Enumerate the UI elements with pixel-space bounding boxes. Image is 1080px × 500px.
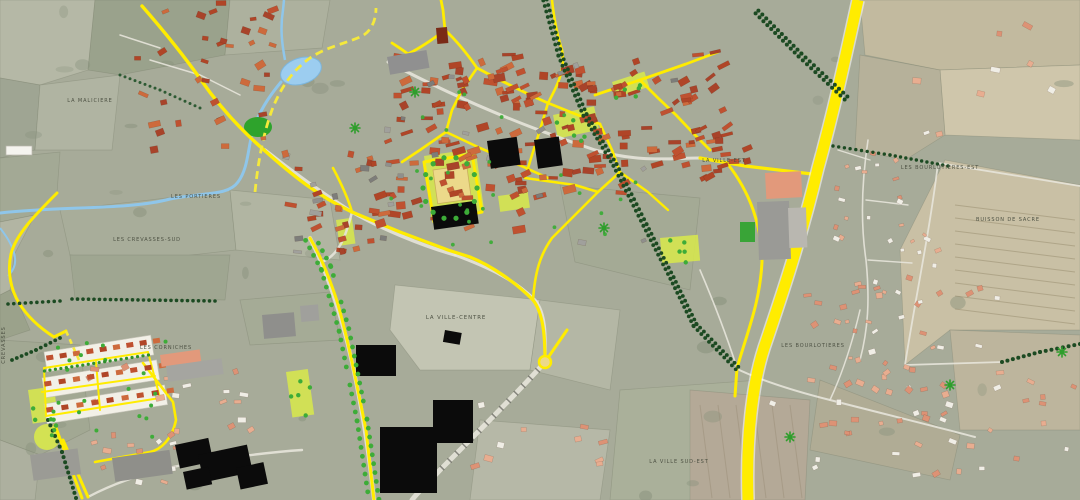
hedge-tree [197,299,201,303]
street-tree [349,392,354,397]
large-building [300,304,319,322]
building [520,83,530,90]
hedge-tree [671,282,675,286]
hedge-tree [809,66,813,70]
street-tree [359,390,364,395]
hedge-tree [92,362,95,365]
building [720,131,733,137]
street-tree [373,470,378,475]
hedge-tree [1011,357,1015,361]
hedge-tree [668,277,672,281]
building [899,223,904,227]
hedge-tree [621,184,625,188]
hedge-tree [131,298,135,302]
field-patch [60,190,236,262]
street-tree [429,177,433,181]
development-tree [77,410,81,414]
map-canvas[interactable]: LA MALICIERELES PORTIERESLES CREVASSES-S… [0,0,1080,500]
street-tree [331,273,336,278]
hedge-tree [139,81,142,84]
roundabout [539,356,551,368]
hedge-tree [631,204,635,208]
building [849,357,853,360]
building [834,319,842,325]
hedge-tree [74,496,78,500]
hedge-tree [659,251,663,255]
hedge-tree [915,158,918,161]
building [150,146,159,154]
hedge-tree [579,97,583,101]
development-tree [79,353,83,357]
hedge-tree [654,248,658,252]
building [111,432,116,438]
hedge-tree [789,47,793,51]
street-tree [340,347,345,352]
building [909,367,915,372]
bush [56,66,74,72]
bush [1054,80,1074,87]
hedge-tree [652,237,656,241]
bush [950,296,966,309]
square-tree [472,172,477,177]
building [138,91,149,98]
hedge-tree [65,366,68,369]
hedge-tree [184,100,187,103]
street-tree [371,461,376,466]
building [819,422,827,427]
hedge-tree [164,299,168,303]
hedge-tree [552,25,556,29]
hedge-tree [776,28,780,32]
hedge-tree [625,182,629,186]
building [717,60,730,70]
building [175,120,181,127]
hedge-tree [12,302,16,306]
bush [330,80,345,87]
building [172,393,180,399]
hedge-tree [651,243,655,247]
building [905,386,914,395]
zone-tree [668,238,672,242]
street-tree [332,311,337,316]
hedge-tree [559,59,563,63]
hedge-tree [634,209,638,213]
map-label-la-maliciere: LA MALICIERE [67,98,112,104]
building [810,321,818,329]
hedge-tree [186,299,190,303]
building [367,238,374,243]
building [155,128,165,137]
bush [43,250,53,257]
building [851,289,859,295]
hedge-tree [664,261,668,265]
hedge-tree [119,358,122,361]
street-tree [444,128,448,132]
field-patch [70,255,230,300]
building [941,411,948,417]
bush [125,124,138,128]
hedge-tree [545,0,549,1]
zone-tree [677,249,681,253]
hedge-tree [784,36,788,40]
hedge-tree [557,42,561,46]
building [893,177,900,181]
hedge-tree [690,313,694,317]
hedge-tree [550,32,554,36]
large-building [387,50,430,75]
hedge-tree [49,341,53,345]
building [833,224,838,230]
hedge-tree [47,300,51,304]
hedge-tree [208,299,212,303]
hedge-tree [685,310,689,314]
hedge-tree [662,256,666,260]
square-tree [423,199,428,204]
street-tree [467,220,471,224]
hedge-tree [1067,344,1071,348]
building [932,263,937,268]
hedge-tree [620,172,624,176]
building [134,56,140,60]
park-patch [740,222,755,242]
star-tree-icon [788,435,791,438]
public-building [183,467,212,490]
building [647,146,657,152]
building [388,202,394,207]
street-tree [321,276,326,281]
hedge-tree [577,104,581,108]
hedge-tree [644,229,648,233]
street-tree [353,410,358,415]
building [836,399,841,405]
building [996,370,1004,375]
street-tree [361,399,366,404]
building [431,152,438,158]
hedge-tree [70,297,74,301]
hedge-tree [622,177,626,181]
building [261,136,266,140]
building [868,348,876,355]
hedge-tree [35,301,39,305]
hedge-tree [583,107,587,111]
street-tree [303,238,308,243]
hedge-tree [44,343,48,347]
building [513,103,520,110]
field-patch [0,215,35,295]
hedge-tree [666,272,670,276]
building [156,438,163,445]
street-tree [338,338,343,343]
hedge-tree [81,363,84,366]
street-tree [367,435,372,440]
street-tree [559,173,563,177]
building [253,85,265,92]
building [398,186,405,192]
hedge-tree [543,4,547,8]
building [332,193,338,200]
map-label-la-ville-est: LA VILLE-EST [702,158,746,164]
hedge-tree [576,92,580,96]
map-label-buisson-de-sacre: BUISSON DE SACRE [976,217,1040,223]
hedge-tree [635,202,639,206]
building [651,160,664,168]
hedge-tree [41,300,45,304]
building [815,457,820,462]
field-patch [390,285,540,370]
building [720,152,731,157]
building [882,360,888,366]
building [160,99,167,105]
hedge-tree [617,167,621,171]
building [426,124,438,134]
hedge-tree [92,298,96,302]
hedge-tree [98,361,101,364]
hedge-tree [34,348,38,352]
building [515,181,526,185]
building [574,436,582,442]
hedge-tree [799,52,803,56]
building [681,161,690,168]
street-tree [307,245,312,250]
street-tree [562,113,566,117]
hedge-tree [72,491,76,495]
street-tree [361,463,366,468]
hedge-tree [551,20,555,24]
building [912,472,921,477]
building [845,164,850,168]
hedge-tree [681,294,685,298]
building [369,175,378,183]
hedge-tree [567,79,571,83]
building [587,100,596,106]
hedge-tree [130,356,133,359]
street-tree [487,160,491,164]
street-tree [311,253,316,258]
map-label-les-crevasses-sud: LES CREVASSES-SUD [113,237,181,243]
hedge-tree [632,197,636,201]
large-building [765,171,802,199]
building [239,392,248,397]
hedge-tree [675,291,679,295]
hedge-tree [796,48,800,52]
zone-tree [682,240,686,244]
street-tree [421,115,425,119]
hedge-tree [544,10,548,14]
development-tree [50,433,54,437]
building [410,160,419,165]
building [401,116,406,120]
hedge-tree [52,300,56,304]
hedge-tree [103,298,107,302]
hedge-tree [174,95,177,98]
building [384,127,390,133]
field-patch [940,65,1080,140]
hedge-tree [48,369,51,372]
street-tree [319,267,324,272]
development-tree [153,392,157,396]
hedge-tree [837,87,841,91]
building [618,130,631,136]
building [873,279,879,285]
street-tree [463,92,467,96]
map-label-la-ville-sud-est: LA VILLE SUD-EST [649,459,708,465]
hedge-tree [831,144,834,147]
building [583,167,595,174]
hedge-tree [153,298,157,302]
bush [977,383,986,396]
street-tree [360,454,365,459]
hedge-tree [925,160,928,163]
building [867,216,871,220]
bush [59,6,68,19]
hedge-tree [733,361,737,365]
zone-tree [298,379,302,383]
development-tree [82,399,86,403]
street-tree [348,336,353,341]
hedge-tree [149,85,152,88]
building [294,236,303,242]
hedge-tree [822,78,826,82]
hedge-tree [702,330,706,334]
hedge-tree [87,363,90,366]
hedge-tree [29,350,33,354]
hedge-tree [624,189,628,193]
hedge-tree [169,299,173,303]
hedge-tree [871,151,874,154]
hedge-tree [548,9,552,13]
building [516,68,526,76]
hedge-tree [772,24,776,28]
building [641,126,652,130]
hedge-tree [845,95,849,99]
building [437,108,444,114]
zone-tree [303,413,307,417]
building [668,140,681,144]
hedge-tree [98,298,102,302]
street-tree [489,240,493,244]
building [335,205,342,211]
development-tree [57,401,61,405]
hedge-tree [76,297,80,301]
hedge-tree [571,89,575,93]
building [913,410,920,417]
hedge-tree [147,353,150,356]
building [705,73,715,82]
hedge-tree [656,253,660,257]
map-label-crevasses-edge: CREVASSES [1,326,7,363]
building [355,225,362,231]
building [895,289,901,295]
building [713,169,722,174]
building [247,426,255,434]
hedge-tree [615,162,619,166]
hedge-tree [199,107,202,110]
hedge-tree [570,77,574,81]
zone-tree [33,418,37,422]
star-tree-icon [353,126,356,129]
street-tree [344,317,349,322]
development-tree [52,428,56,432]
street-tree [446,171,450,175]
building [232,368,238,375]
building [221,144,229,149]
hedge-tree [804,55,808,59]
street-tree [366,426,371,431]
hedge-tree [561,64,565,68]
zone-tree [579,139,583,143]
street-tree [347,383,352,388]
building [216,1,226,6]
hedge-tree [53,339,57,343]
hedge-tree [18,302,22,306]
hedge-tree [175,299,179,303]
hedge-tree [136,355,139,358]
hedge-tree [29,301,33,305]
building [858,285,866,288]
bush [813,96,824,105]
hedge-tree [667,266,671,270]
building [402,211,413,220]
building [160,479,168,484]
hedge-tree [630,192,634,196]
hedge-tree [826,82,830,86]
map-screenshot: LA MALICIERELES PORTIERESLES CREVASSES-S… [0,0,1080,500]
hedge-tree [877,152,880,155]
building [234,400,241,404]
street-tree [341,308,346,313]
building [369,208,380,214]
building [441,137,449,143]
building [912,77,921,84]
hedge-tree [717,345,721,349]
large-building [436,27,448,44]
hedge-tree [920,159,923,162]
hedge-tree [213,299,217,303]
building [136,448,143,453]
hedge-tree [673,286,677,290]
building [500,94,509,102]
public-building [534,137,563,169]
building [182,383,191,388]
street-tree [619,197,623,201]
building [567,124,575,131]
hedge-tree [616,174,620,178]
hedge-tree [601,139,605,143]
street-tree [634,180,638,184]
street-tree [329,302,334,307]
street-tree [458,203,462,207]
hedge-tree [1049,348,1053,352]
street-tree [491,193,495,197]
hedge-tree [834,90,838,94]
hedge-tree [555,36,559,40]
street-tree [316,241,321,246]
hedge-tree [805,62,809,66]
building [91,440,98,445]
hedge-tree [158,298,162,302]
building [844,380,853,388]
hedge-tree [581,102,585,106]
building [708,83,720,94]
building [855,379,864,387]
square-tree [441,155,446,160]
hedge-tree [142,298,146,302]
building [807,378,815,383]
hedge-tree [664,267,668,271]
street-tree [324,285,329,290]
building [844,431,849,435]
building [594,164,606,168]
